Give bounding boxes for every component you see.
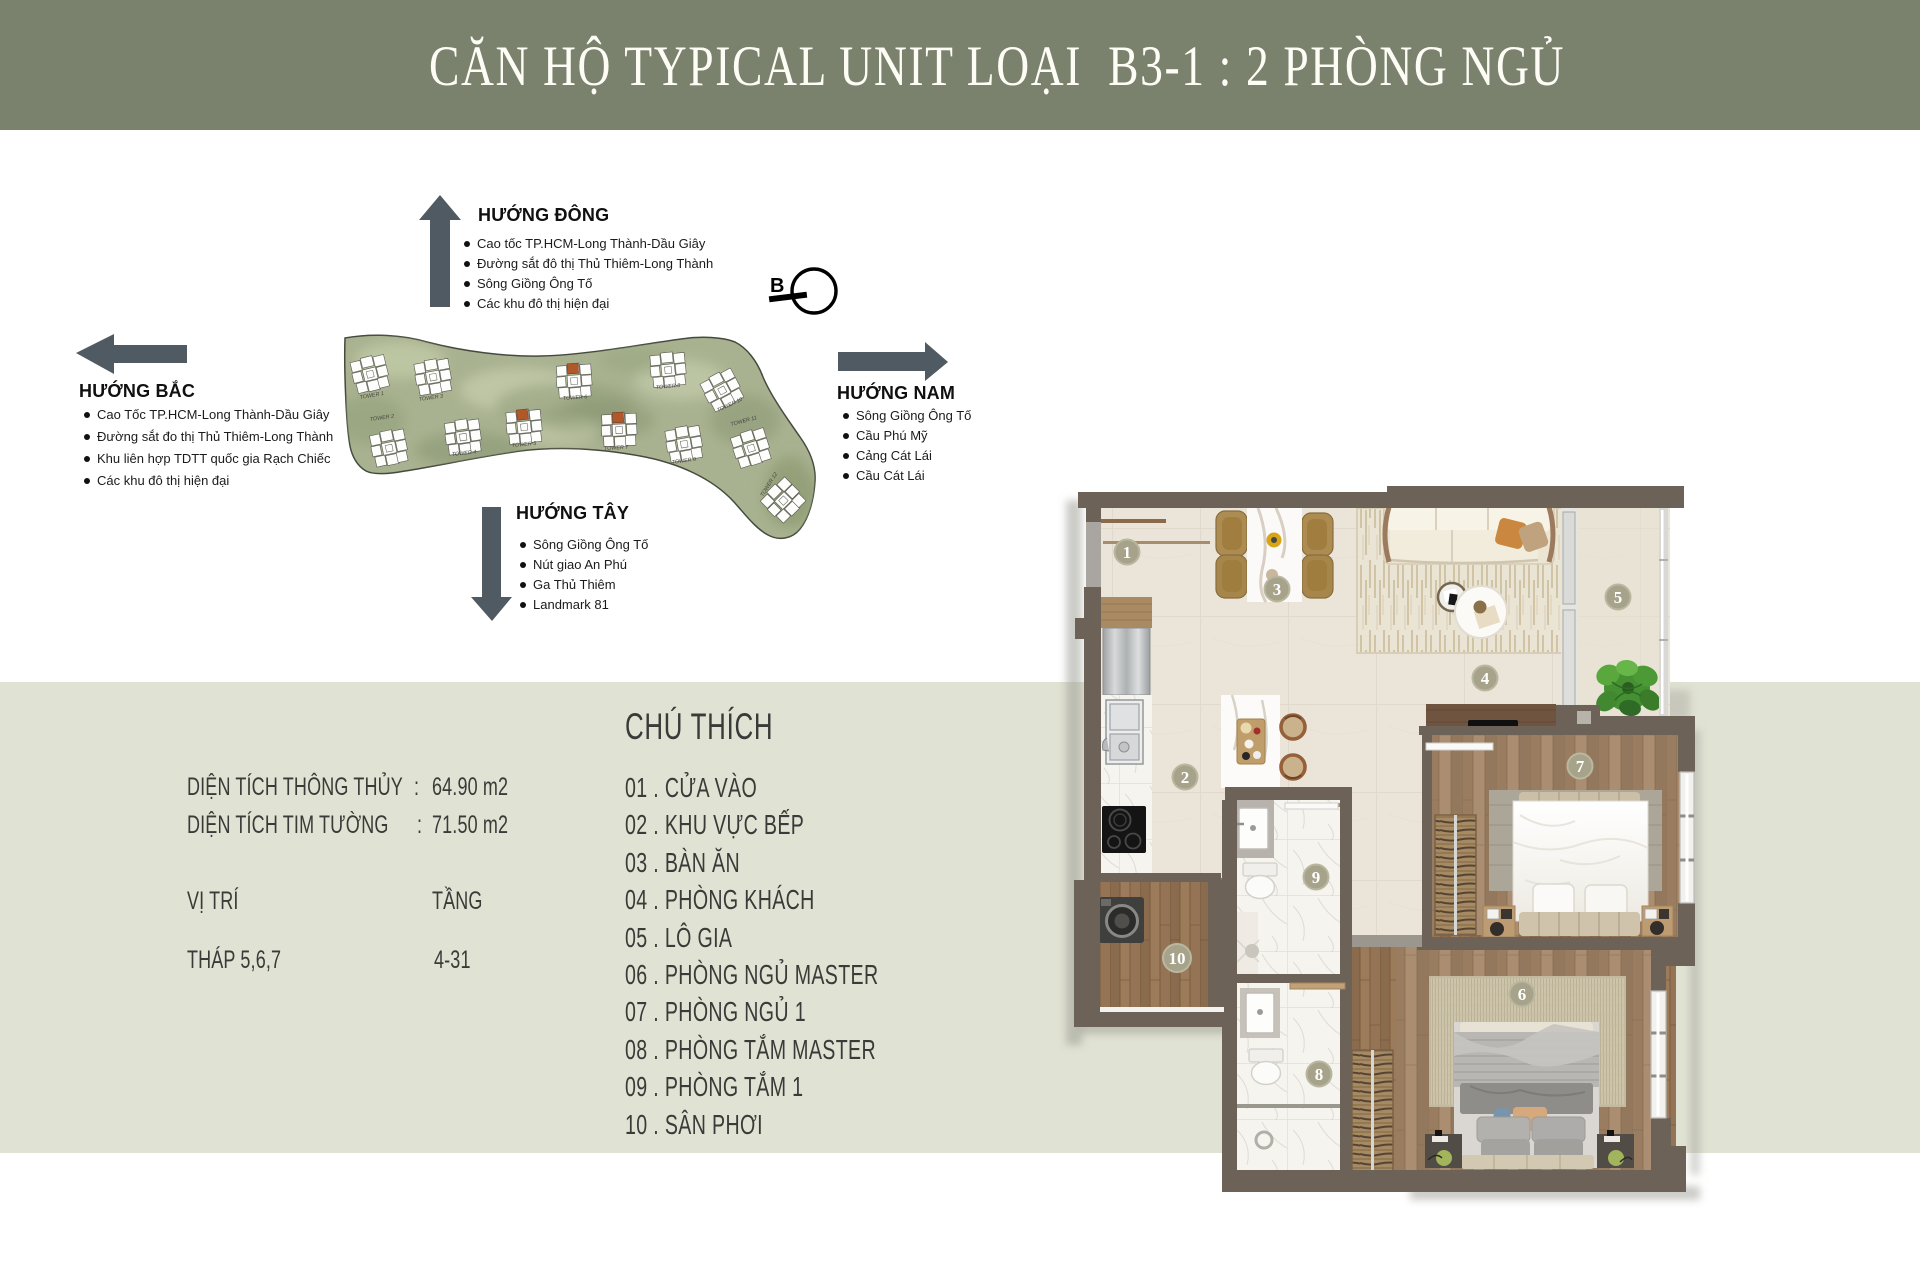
- svg-text:6: 6: [1518, 985, 1527, 1004]
- svg-text:4: 4: [1481, 669, 1490, 688]
- svg-text:5: 5: [1614, 588, 1623, 607]
- svg-text:10: 10: [1169, 949, 1186, 968]
- svg-text:B: B: [770, 275, 784, 297]
- svg-text:8: 8: [1315, 1065, 1324, 1084]
- svg-text:7: 7: [1576, 757, 1585, 776]
- svg-text:2: 2: [1181, 768, 1190, 787]
- svg-text:9: 9: [1312, 868, 1321, 887]
- svg-text:1: 1: [1123, 543, 1132, 562]
- svg-text:3: 3: [1273, 580, 1282, 599]
